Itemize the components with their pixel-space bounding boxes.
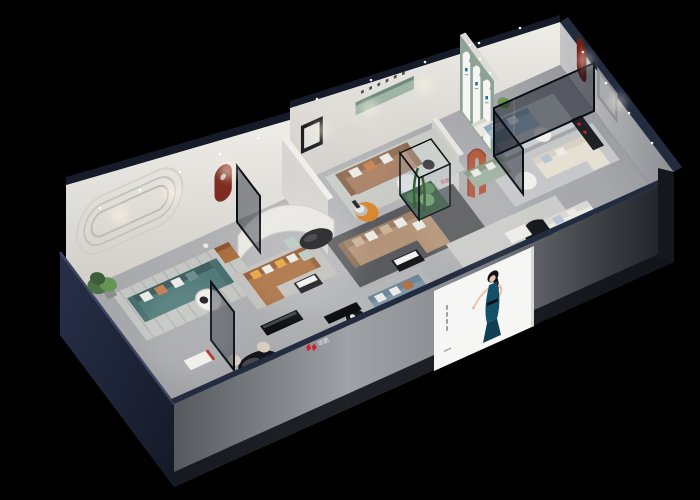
showroom-scene: 华凯 — [0, 0, 700, 500]
showroom-render: 华凯 — [0, 0, 700, 500]
poster-edge-shade — [531, 246, 534, 327]
corner-pillar — [658, 168, 674, 262]
